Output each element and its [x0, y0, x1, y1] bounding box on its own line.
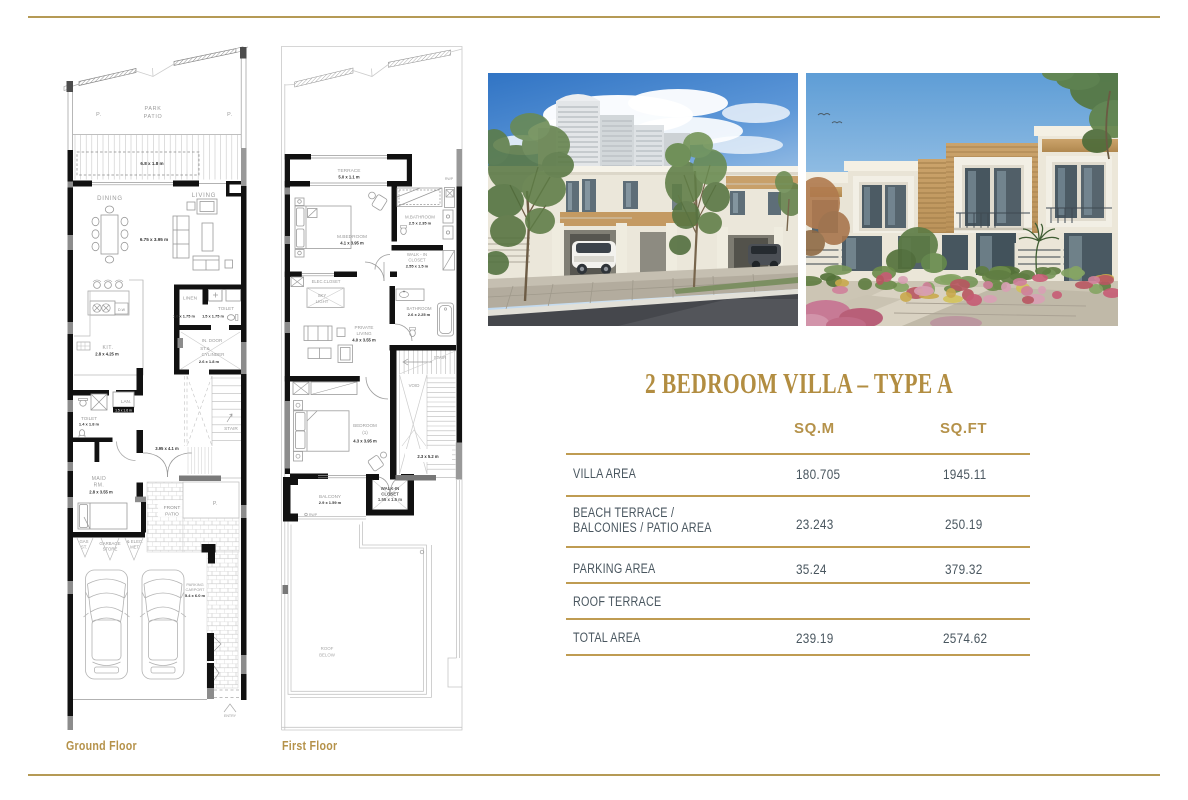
- svg-text:D.W: D.W: [118, 308, 126, 312]
- svg-text:BALCONY: BALCONY: [319, 494, 341, 499]
- svg-text:PATIO: PATIO: [144, 114, 163, 120]
- svg-text:CYLINDER: CYLINDER: [202, 352, 226, 357]
- svg-text:2.8 x 3.55 m: 2.8 x 3.55 m: [89, 490, 113, 495]
- svg-text:P.: P.: [96, 112, 102, 118]
- svg-text:(1): (1): [362, 430, 368, 435]
- svg-text:BATHROOM: BATHROOM: [406, 306, 431, 311]
- svg-text:CARPORT: CARPORT: [186, 587, 206, 592]
- svg-text:RWP: RWP: [445, 177, 454, 181]
- svg-text:5.4 x 6.0 m: 5.4 x 6.0 m: [185, 593, 206, 598]
- svg-text:WALK-IN: WALK-IN: [381, 486, 399, 491]
- svg-text:TERRACE: TERRACE: [338, 168, 361, 174]
- svg-text:LIVING: LIVING: [356, 331, 371, 336]
- svg-text:CLOSET: CLOSET: [408, 258, 426, 263]
- svg-text:MAID: MAID: [92, 476, 107, 482]
- svg-text:CLOSET: CLOSET: [381, 492, 399, 497]
- svg-text:2.5 x 2.35 m: 2.5 x 2.35 m: [409, 221, 432, 226]
- svg-text:SKY: SKY: [318, 293, 327, 298]
- svg-text:1.0 x 1.75 m: 1.0 x 1.75 m: [173, 314, 195, 319]
- svg-text:IN. DOOR: IN. DOOR: [202, 338, 223, 343]
- svg-text:TOILET: TOILET: [218, 306, 234, 311]
- svg-text:BEDROOM: BEDROOM: [353, 423, 377, 428]
- svg-text:TOILET: TOILET: [81, 416, 97, 421]
- svg-text:ST.&: ST.&: [200, 346, 210, 351]
- svg-text:2.55 x 1.5 m: 2.55 x 1.5 m: [406, 264, 429, 269]
- svg-text:4.0 x 3.55 m: 4.0 x 3.55 m: [352, 338, 376, 343]
- svg-text:4.3 x 3.95 m: 4.3 x 3.95 m: [353, 439, 377, 444]
- svg-text:LAN.: LAN.: [121, 399, 131, 404]
- svg-text:RWP: RWP: [309, 513, 318, 517]
- svg-text:2.6 x 1.8 m: 2.6 x 1.8 m: [199, 359, 220, 364]
- svg-text:2.9 x 1.59 m: 2.9 x 1.59 m: [319, 500, 342, 505]
- svg-text:1.5 x 1.6 m: 1.5 x 1.6 m: [115, 409, 132, 413]
- svg-text:BELOW: BELOW: [319, 653, 336, 658]
- svg-text:RM.: RM.: [94, 483, 105, 489]
- svg-text:1.4 x 1.8 m: 1.4 x 1.8 m: [79, 422, 100, 427]
- svg-text:DINING: DINING: [97, 196, 123, 202]
- svg-text:6.8 x 1.8 m: 6.8 x 1.8 m: [140, 161, 163, 166]
- svg-text:PARK: PARK: [144, 106, 161, 112]
- svg-text:LIGHT: LIGHT: [316, 299, 329, 304]
- svg-text:VOID: VOID: [409, 383, 420, 388]
- svg-text:PATIO: PATIO: [165, 512, 179, 518]
- svg-text:STAIR: STAIR: [224, 426, 238, 432]
- svg-text:P.: P.: [227, 112, 233, 118]
- svg-text:2.3 x 5.2 m: 2.3 x 5.2 m: [417, 454, 438, 459]
- svg-text:PRIVATE: PRIVATE: [355, 325, 374, 330]
- svg-text:4.1 x 3.95 m: 4.1 x 3.95 m: [340, 241, 364, 246]
- svg-text:FRONT: FRONT: [164, 505, 181, 511]
- svg-text:LINEN: LINEN: [183, 296, 198, 302]
- svg-text:ELEC.CLOSET: ELEC.CLOSET: [312, 279, 341, 284]
- svg-text:GAS: GAS: [79, 539, 88, 544]
- svg-text:6.75 x 3.95 m: 6.75 x 3.95 m: [140, 237, 168, 242]
- svg-text:M.BATHROOM: M.BATHROOM: [405, 215, 435, 220]
- svg-text:3.95 x 4.1 m: 3.95 x 4.1 m: [155, 446, 179, 451]
- svg-text:1.5 x 1.75 m: 1.5 x 1.75 m: [202, 314, 224, 319]
- svg-text:2.8 x 4.25 m: 2.8 x 4.25 m: [95, 352, 119, 357]
- svg-text:P.: P.: [213, 501, 217, 507]
- svg-text:1.55 x 1.5 m: 1.55 x 1.5 m: [378, 497, 402, 502]
- svg-text:2.6 x 2.25 m: 2.6 x 2.25 m: [408, 312, 431, 317]
- svg-text:LIVING: LIVING: [192, 193, 216, 199]
- svg-text:5.0 x 1.1 m: 5.0 x 1.1 m: [338, 175, 359, 180]
- svg-text:KIT.: KIT.: [102, 345, 113, 351]
- svg-text:WALK - IN: WALK - IN: [407, 252, 427, 257]
- svg-text:ENTRY: ENTRY: [224, 714, 237, 718]
- svg-text:ROOF: ROOF: [321, 646, 334, 651]
- svg-text:M.BEDROOM: M.BEDROOM: [337, 234, 367, 240]
